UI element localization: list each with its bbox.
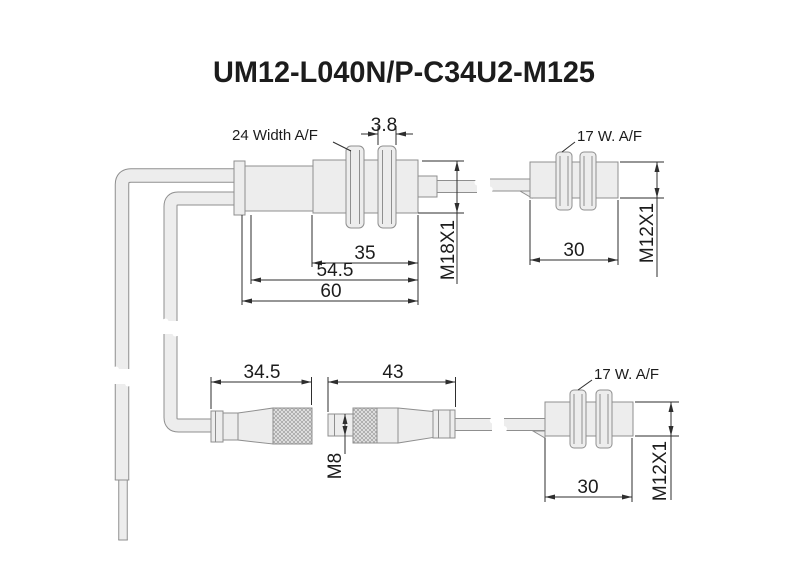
m8-female-connector-body [211,408,312,444]
male-thread-spec-value: M8 [325,453,346,479]
cable-break-notch [113,367,119,373]
nut-width-value: 3.8 [371,115,397,136]
m12-hex-nut [556,152,572,210]
technical-drawing: UM12-L040N/P-C34U2-M125 [0,0,800,581]
cable-inner-lower [171,334,217,426]
m18-tip [418,176,437,197]
m18-cable-gland [234,161,245,215]
female-collar [211,411,223,442]
male-knurl [353,408,377,443]
leader-line [578,380,592,390]
m18-hex-nut [378,146,396,228]
wrench-flat-label: 24 Width A/F [232,127,318,144]
total-length-value: 60 [320,281,341,302]
m12-hex-nut [580,152,596,210]
cable-break-notch [163,319,169,325]
body-length-value: 30 [563,240,584,261]
female-length-value: 34.5 [244,362,281,383]
m12-top-dimensions: 17 W. A/F 30 M12X1 [530,128,664,277]
wrench-flat-label: 17 W. A/F [594,366,659,383]
drawing-canvas: UM12-L040N/P-C34U2-M125 [0,0,800,581]
male-collar [433,410,455,438]
m8-male-connector-body [328,408,455,443]
cable-inner-upper [171,199,237,322]
m12-top-body [530,162,618,198]
thread-spec-value: M12X1 [650,441,671,501]
m12-hex-nut [596,390,612,448]
male-taper [398,408,433,443]
body-length-value: 54.5 [317,260,354,281]
body-length-value: 30 [577,477,598,498]
thread-spec-value: M18X1 [438,220,459,280]
m18-hex-nut [346,146,364,228]
male-body [377,408,398,443]
cable-break-notch [487,187,493,193]
m12-hex-nut [570,390,586,448]
cables [113,176,546,541]
cable-inner-upper-fill [171,199,237,322]
cable-break-notch [501,426,507,432]
m18-sensor-body [234,146,437,228]
m18-rear-body [245,166,313,211]
leader-line [562,142,575,152]
female-knurl [273,408,312,444]
cable-break-notch [173,331,179,337]
cable-break-notch [475,180,481,186]
thread-spec-value: M12X1 [637,203,658,263]
male-thread-tip [328,414,353,436]
cable-boot [533,431,545,438]
m18-threaded-body [313,160,418,213]
page-title: UM12-L040N/P-C34U2-M125 [213,56,595,89]
female-neck [223,413,238,440]
cable-break-notch [125,381,131,387]
thread-length-value: 35 [354,243,375,264]
wrench-flat-label: 17 W. A/F [577,128,642,145]
female-taper [238,408,273,444]
m12-sensor-top-body [520,152,618,210]
m12-sensor-bottom-body [533,390,633,448]
m12-bottom-body [545,402,633,436]
male-length-value: 43 [382,362,403,383]
cable-break-notch [490,418,496,424]
